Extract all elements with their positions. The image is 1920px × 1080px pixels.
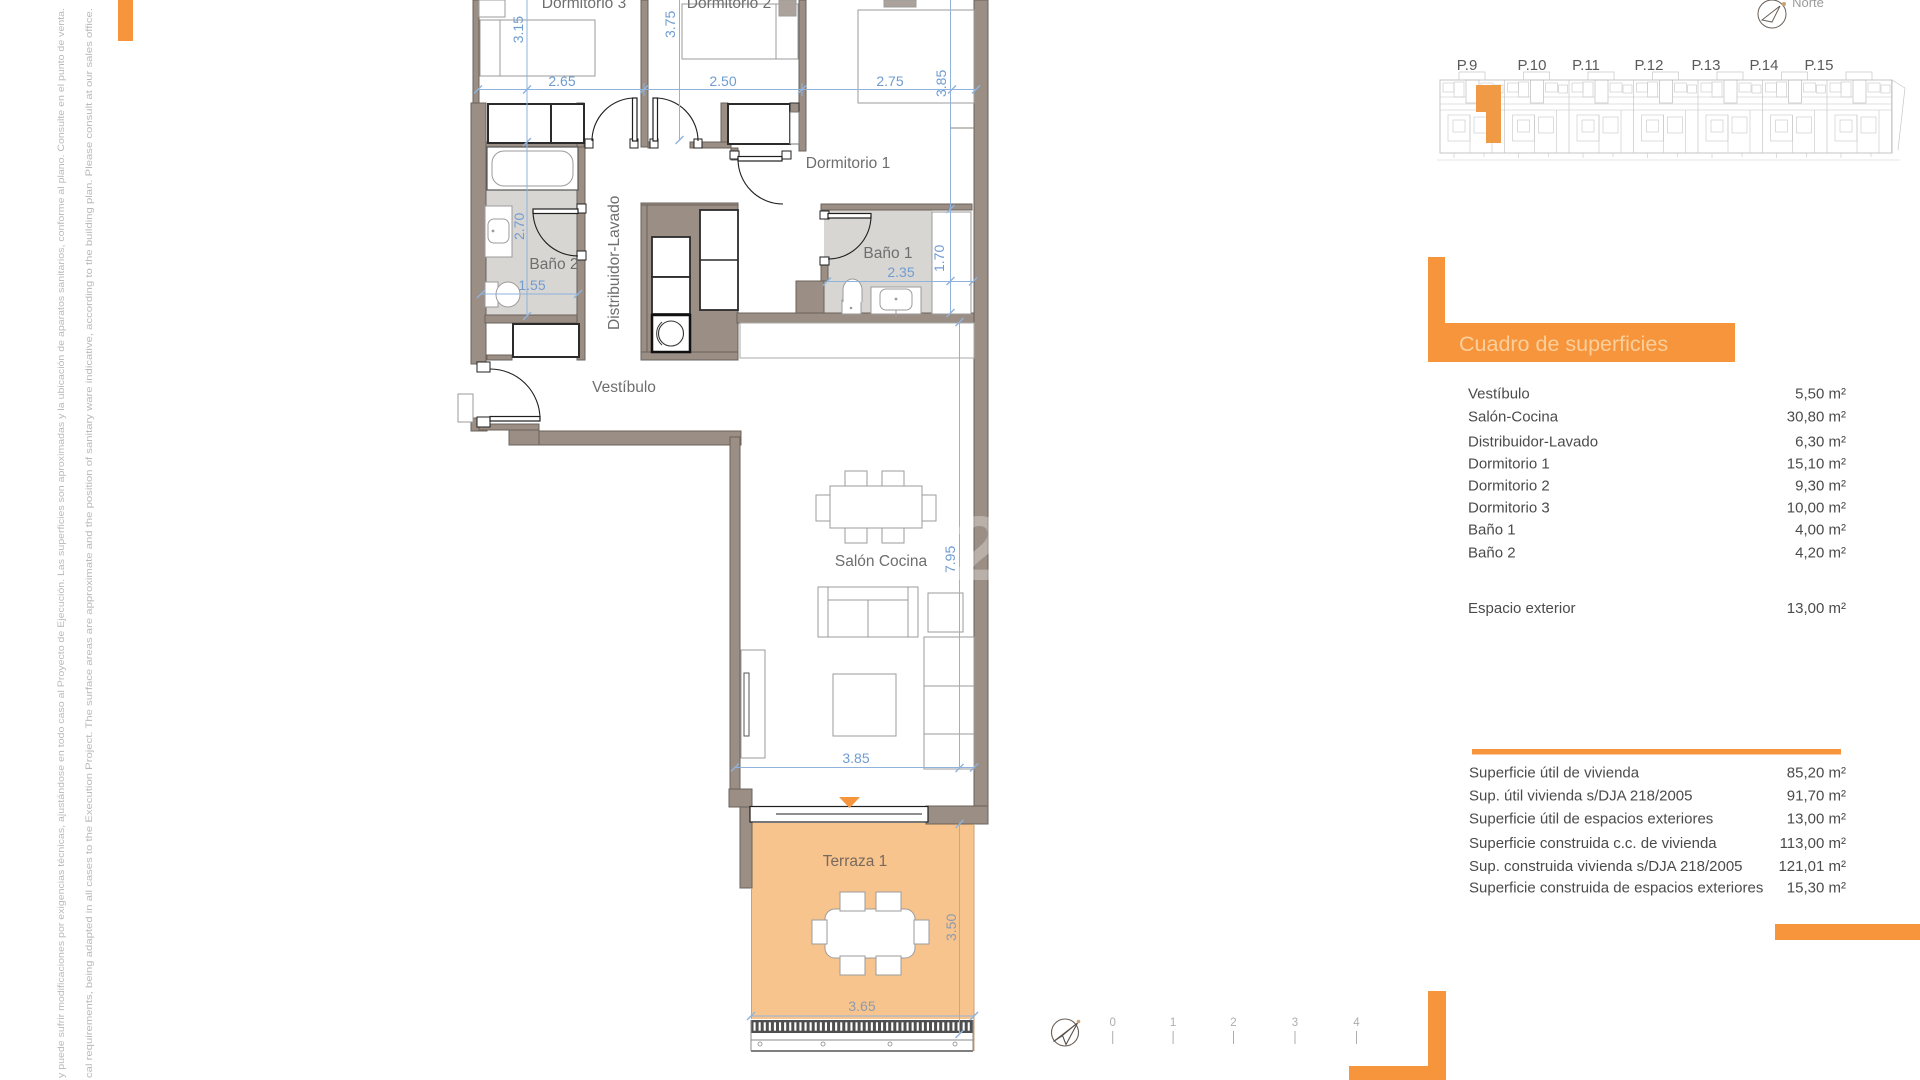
svg-text:P.15: P.15 <box>1805 57 1834 74</box>
svg-text:5,50 m²: 5,50 m² <box>1795 386 1846 403</box>
svg-text:Superficie útil de vivienda: Superficie útil de vivienda <box>1469 765 1640 782</box>
svg-text:85,20 m²: 85,20 m² <box>1787 765 1846 782</box>
svg-text:P.12: P.12 <box>1635 57 1664 74</box>
svg-text:3.65: 3.65 <box>848 998 875 1014</box>
svg-text:21: 21 <box>954 498 1056 600</box>
svg-text:P.11: P.11 <box>1572 57 1600 74</box>
svg-text:P.9: P.9 <box>1457 57 1478 74</box>
svg-text:Espacio exterior: Espacio exterior <box>1468 600 1576 617</box>
svg-text:Salón-Cocina: Salón-Cocina <box>1468 409 1559 426</box>
svg-text:Distribuidor-Lavado: Distribuidor-Lavado <box>606 196 623 330</box>
svg-text:15,30 m²: 15,30 m² <box>1787 880 1846 897</box>
svg-text:3: 3 <box>1292 1017 1298 1029</box>
svg-text:2: 2 <box>1230 1017 1236 1029</box>
svg-text:Superficie construida c.c. de: Superficie construida c.c. de vivienda <box>1469 835 1717 852</box>
svg-text:P.13: P.13 <box>1692 57 1721 74</box>
svg-text:91,70 m²: 91,70 m² <box>1787 788 1846 805</box>
svg-text:Distribuidor-Lavado: Distribuidor-Lavado <box>1468 434 1598 451</box>
svg-text:Dormitorio 3: Dormitorio 3 <box>1468 500 1550 517</box>
svg-text:Norte: Norte <box>1792 0 1824 10</box>
svg-text:0: 0 <box>1109 1017 1115 1029</box>
svg-text:Baño 2: Baño 2 <box>529 256 578 273</box>
svg-text:Sup. construida vivienda s/DJA: Sup. construida vivienda s/DJA 218/2005 <box>1469 858 1743 875</box>
svg-text:P.10: P.10 <box>1518 57 1547 74</box>
svg-text:3.85: 3.85 <box>842 750 869 766</box>
svg-text:2.50: 2.50 <box>709 73 736 89</box>
svg-text:Superficie construida de espac: Superficie construida de espacios exteri… <box>1469 880 1763 897</box>
svg-text:3.75: 3.75 <box>662 11 678 38</box>
svg-text:13,00 m²: 13,00 m² <box>1787 811 1846 828</box>
svg-text:10,00 m²: 10,00 m² <box>1787 500 1846 517</box>
svg-text:2.35: 2.35 <box>887 264 914 280</box>
svg-text:Dormitorio 1: Dormitorio 1 <box>1468 456 1550 473</box>
svg-text:30,80 m²: 30,80 m² <box>1787 409 1846 426</box>
svg-text:1.55: 1.55 <box>518 277 545 293</box>
svg-text:2.70: 2.70 <box>511 213 527 240</box>
svg-text:Baño 1: Baño 1 <box>1468 522 1516 539</box>
svg-text:Dormitorio 3: Dormitorio 3 <box>542 0 626 12</box>
svg-text:Dormitorio 2: Dormitorio 2 <box>687 0 771 12</box>
svg-text:Dormitorio 2: Dormitorio 2 <box>1468 478 1550 495</box>
svg-text:9,30 m²: 9,30 m² <box>1795 478 1846 495</box>
svg-text:Vestíbulo: Vestíbulo <box>1468 386 1530 403</box>
svg-text:2.75: 2.75 <box>876 73 903 89</box>
svg-text:Vestíbulo: Vestíbulo <box>592 379 656 396</box>
svg-text:Baño 2: Baño 2 <box>1468 545 1516 562</box>
svg-text:4,20 m²: 4,20 m² <box>1795 545 1846 562</box>
svg-text:4,00 m²: 4,00 m² <box>1795 522 1846 539</box>
svg-text:Sup. útil vivienda s/DJA 218/2: Sup. útil vivienda s/DJA 218/2005 <box>1469 788 1692 805</box>
svg-text:3.85: 3.85 <box>933 70 949 97</box>
svg-text:3.15: 3.15 <box>510 16 526 43</box>
svg-text:1.70: 1.70 <box>931 245 947 272</box>
svg-text:3.50: 3.50 <box>943 914 959 941</box>
svg-text:Salón Cocina: Salón Cocina <box>835 553 928 570</box>
svg-text:6,30 m²: 6,30 m² <box>1795 434 1846 451</box>
svg-text:4: 4 <box>1353 1017 1360 1029</box>
svg-text:121,01 m²: 121,01 m² <box>1778 858 1846 875</box>
svg-text:Cuadro de superficies: Cuadro de superficies <box>1459 332 1668 356</box>
svg-text:Superficie útil de espacios ex: Superficie útil de espacios exteriores <box>1469 811 1713 828</box>
svg-text:113,00 m²: 113,00 m² <box>1780 835 1846 852</box>
svg-text:P.14: P.14 <box>1750 57 1779 74</box>
svg-text:13,00 m²: 13,00 m² <box>1787 600 1846 617</box>
svg-text:Terraza 1: Terraza 1 <box>823 853 888 870</box>
svg-text:Baño 1: Baño 1 <box>863 245 912 262</box>
svg-text:15,10 m²: 15,10 m² <box>1787 456 1846 473</box>
svg-text:1: 1 <box>1170 1017 1176 1029</box>
svg-text:y puede sufrir modificaciones: y puede sufrir modificaciones por exigen… <box>56 8 67 1078</box>
svg-text:cal requirements, being adapte: cal requirements, being adapted in all c… <box>84 8 95 1078</box>
svg-text:Dormitorio 1: Dormitorio 1 <box>806 155 890 172</box>
svg-text:2.65: 2.65 <box>548 73 575 89</box>
